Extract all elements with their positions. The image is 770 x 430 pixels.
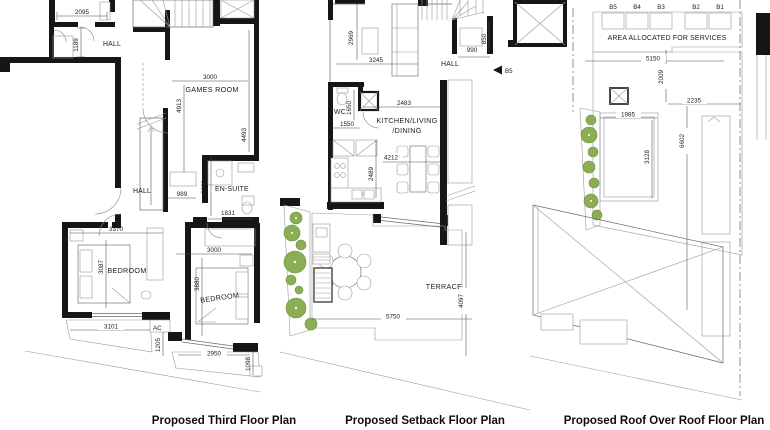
dim-5150: 5150 <box>646 56 661 63</box>
wc-label: WC <box>334 109 346 116</box>
dim-4913: 4913 <box>176 99 183 114</box>
dim-2235: 2235 <box>687 98 702 105</box>
service-b4-label: B4 <box>633 4 641 11</box>
service-b5-label: B5 <box>609 4 617 11</box>
setback-skylight <box>515 2 565 45</box>
games-room-label: GAMES ROOM <box>185 85 238 94</box>
dim-1650: 1650 <box>346 101 353 116</box>
service-b2-label: B2 <box>692 4 700 11</box>
service-b1-label: B1 <box>716 4 724 11</box>
services-label: AREA ALLOCATED FOR SERVICES <box>608 35 727 42</box>
dim-5750: 5750 <box>386 314 401 321</box>
dim-1831: 1831 <box>221 210 236 217</box>
dim-2095: 2095 <box>75 9 90 16</box>
dim-3370: 3370 <box>109 226 124 233</box>
dim-850: 850 <box>481 33 488 44</box>
dim-3880: 3880 <box>194 277 201 292</box>
dim-2969: 2969 <box>348 31 355 46</box>
dim-1098: 1098 <box>245 357 252 372</box>
terrace-label: TERRACE <box>426 282 462 291</box>
roof-caption: Proposed Roof Over Roof Floor Plan <box>564 415 765 427</box>
third-caption: Proposed Third Floor Plan <box>152 415 296 427</box>
dim-990: 990 <box>467 47 478 54</box>
dim-3101: 3101 <box>104 324 119 331</box>
dim-2483: 2483 <box>397 100 412 107</box>
dim-989: 989 <box>177 191 188 198</box>
b5-marker-label: B5 <box>505 68 513 75</box>
bathroom-fixture <box>100 2 110 20</box>
setback-hall-label: HALL <box>441 61 459 68</box>
dim-4493: 4493 <box>241 128 248 143</box>
adjacent-building-wall <box>756 13 770 55</box>
dim-3245: 3245 <box>369 57 384 64</box>
ensuite-label: EN-SUITE <box>215 186 249 193</box>
dim-1205: 1205 <box>155 338 162 353</box>
dim-2283: 2283 <box>201 180 208 195</box>
dim-1985: 1985 <box>621 112 636 119</box>
kitchen-label-1: KITCHEN/LIVING <box>376 116 437 125</box>
floor-plans-sheet: 2095 1189 HALL 3000 GAMES ROOM 4913 4493… <box>0 0 770 430</box>
setback-caption: Proposed Setback Floor Plan <box>345 415 505 427</box>
dim-3128: 3128 <box>644 150 651 165</box>
dim-2009: 2009 <box>658 70 665 85</box>
dim-2950: 2950 <box>207 351 222 358</box>
dim-6602: 6602 <box>679 134 686 149</box>
ac-label: AC <box>153 325 162 332</box>
dim-4097: 4097 <box>458 294 465 309</box>
hall-upper-label: HALL <box>103 41 121 48</box>
dim-3087: 3087 <box>98 260 105 275</box>
kitchen-label-2: /DINING <box>392 126 421 135</box>
hall-lower-label: HALL <box>133 188 151 195</box>
dim-3000-bed: 3000 <box>207 247 222 254</box>
dim-3000-games: 3000 <box>203 74 218 81</box>
bedroom1-label: BEDROOM <box>107 266 146 275</box>
dim-2489: 2489 <box>368 167 375 182</box>
service-b3-label: B3 <box>657 4 665 11</box>
dim-1189: 1189 <box>73 38 80 52</box>
dim-1550: 1550 <box>340 121 355 128</box>
plans-drawing: 2095 1189 HALL 3000 GAMES ROOM 4913 4493… <box>0 0 770 430</box>
setback-dining <box>397 146 439 193</box>
dim-4212: 4212 <box>384 155 399 162</box>
